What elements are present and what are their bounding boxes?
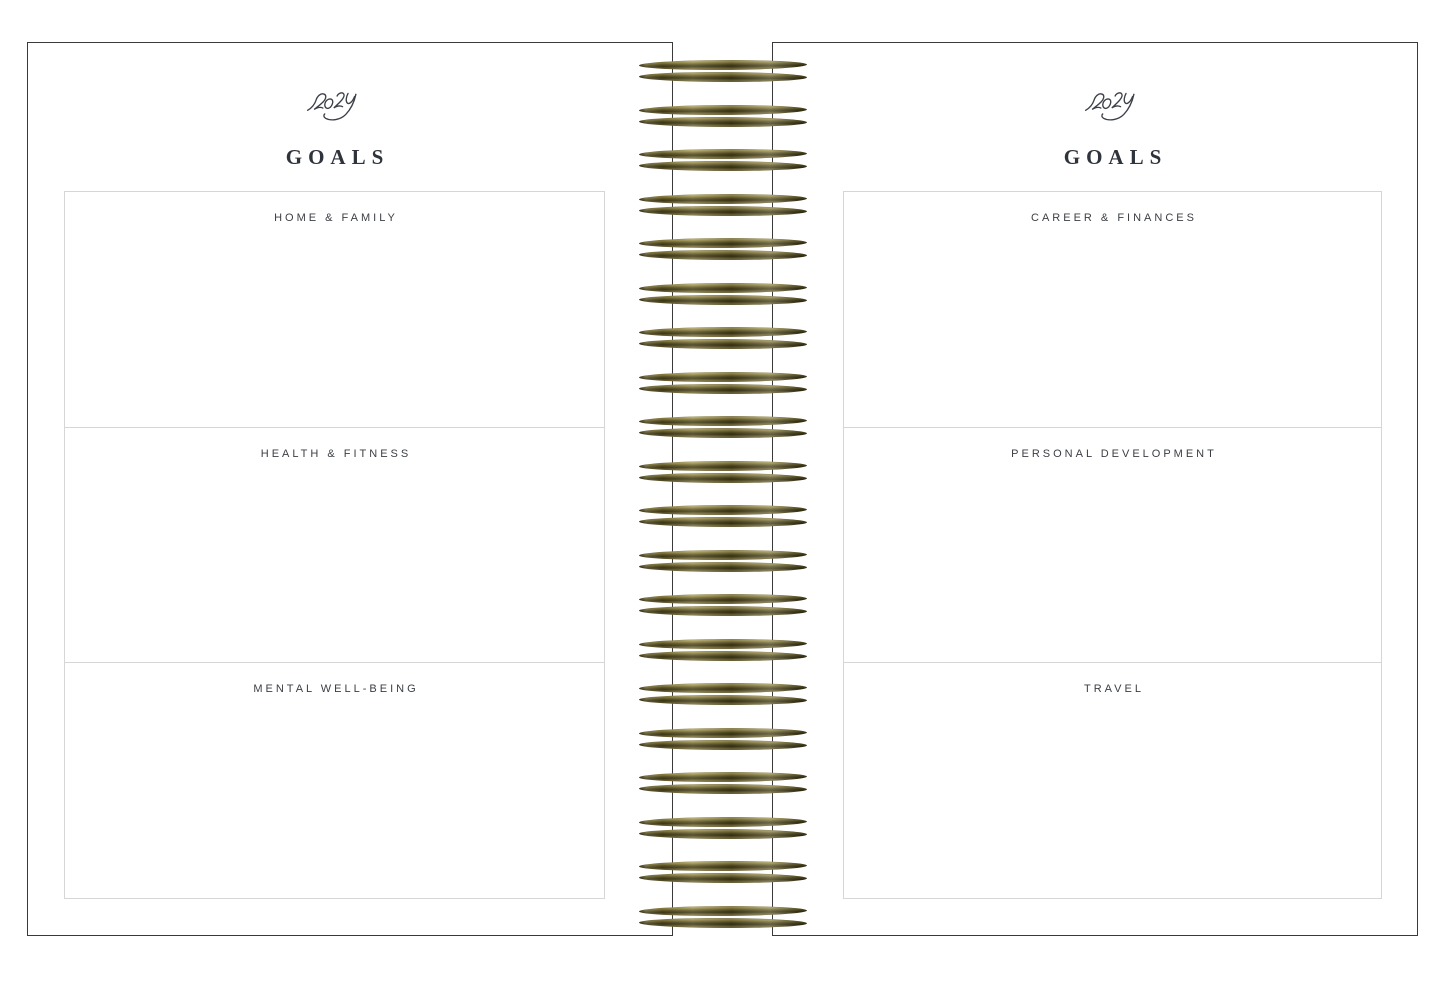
page-title: GOALS	[843, 145, 1382, 170]
section-label: CAREER & FINANCES	[844, 192, 1381, 224]
goal-section-personal-development: PERSONAL DEVELOPMENT	[844, 427, 1381, 663]
right-goals-box: CAREER & FINANCES PERSONAL DEVELOPMENT T…	[843, 191, 1382, 899]
year-text: 2024	[335, 123, 336, 124]
section-label: TRAVEL	[844, 663, 1381, 695]
right-page: 2024 GOALS CAREER & FINANCES PERSONAL DE…	[772, 42, 1418, 936]
year-script-2024: 2024	[303, 85, 367, 123]
goal-section-travel: TRAVEL	[844, 662, 1381, 898]
section-label: HOME & FAMILY	[65, 192, 604, 224]
section-label: HEALTH & FITNESS	[65, 428, 604, 460]
goal-section-home-family: HOME & FAMILY	[65, 192, 604, 427]
section-label: PERSONAL DEVELOPMENT	[844, 428, 1381, 460]
goal-section-mental-well-being: MENTAL WELL-BEING	[65, 662, 604, 898]
goal-section-career-finances: CAREER & FINANCES	[844, 192, 1381, 427]
left-page: 2024 GOALS HOME & FAMILY HEALTH & FITNES…	[27, 42, 673, 936]
section-label: MENTAL WELL-BEING	[65, 663, 604, 695]
planner-goals-spread: 2024 GOALS HOME & FAMILY HEALTH & FITNES…	[0, 0, 1445, 1006]
page-title: GOALS	[64, 145, 605, 170]
year-script-2024: 2024	[1081, 85, 1145, 123]
left-goals-box: HOME & FAMILY HEALTH & FITNESS MENTAL WE…	[64, 191, 605, 899]
year-text: 2024	[1113, 123, 1114, 124]
goal-section-health-fitness: HEALTH & FITNESS	[65, 427, 604, 663]
